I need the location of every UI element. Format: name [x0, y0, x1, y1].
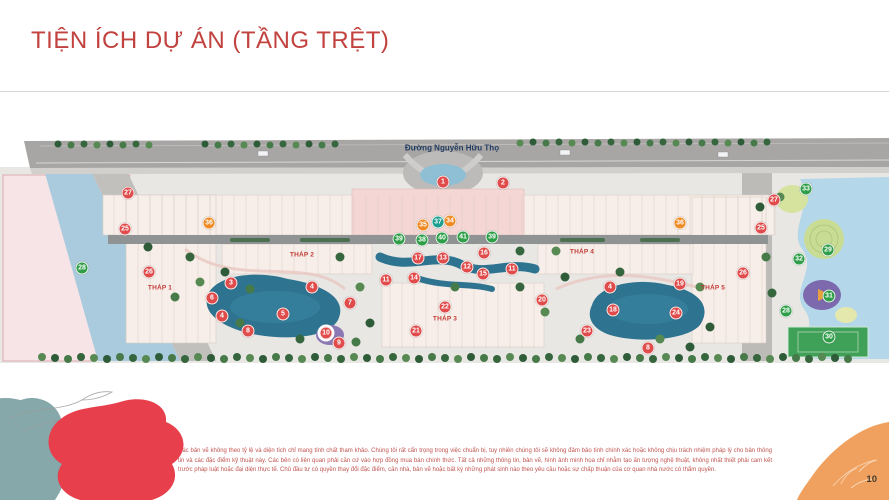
map-marker-39: 39	[393, 233, 406, 246]
map-marker-28: 28	[780, 305, 793, 318]
map-marker-35: 35	[417, 219, 430, 232]
map-marker-4: 4	[306, 281, 319, 294]
map-marker-25: 25	[119, 223, 132, 236]
map-marker-8: 8	[242, 325, 255, 338]
map-marker-10: 10	[320, 327, 333, 340]
marker-layer: 1234445678891011111213141516171819202122…	[0, 137, 889, 370]
page-number: 10	[866, 474, 877, 485]
tower-label: THÁP 4	[570, 249, 594, 256]
map-marker-38: 38	[416, 234, 429, 247]
tower-label: THÁP 1	[148, 285, 172, 292]
decor-bottom-right	[793, 414, 889, 500]
map-marker-26: 26	[737, 267, 750, 280]
map-marker-6: 6	[206, 292, 219, 305]
map-marker-29: 29	[822, 244, 835, 257]
map-marker-26: 26	[143, 266, 156, 279]
map-marker-39: 39	[486, 231, 499, 244]
map-marker-23: 23	[581, 325, 594, 338]
map-marker-8: 8	[642, 342, 655, 355]
title-divider	[0, 91, 889, 92]
map-marker-36: 36	[674, 217, 687, 230]
map-marker-11: 11	[506, 263, 519, 276]
map-marker-37: 37	[432, 216, 445, 229]
decor-bottom-left	[0, 360, 230, 500]
map-marker-1: 1	[437, 176, 450, 189]
site-plan-map: Đường Nguyễn Hữu Thọ 1234445678891011111…	[0, 137, 889, 370]
map-marker-31: 31	[823, 290, 836, 303]
orange-blob	[797, 422, 889, 500]
map-marker-34: 34	[444, 215, 457, 228]
map-marker-13: 13	[437, 252, 450, 265]
map-marker-32: 32	[793, 253, 806, 266]
tower-label: THÁP 3	[433, 316, 457, 323]
map-marker-21: 21	[410, 325, 423, 338]
map-marker-40: 40	[436, 232, 449, 245]
map-marker-30: 30	[823, 331, 836, 344]
map-marker-36: 36	[203, 217, 216, 230]
map-marker-24: 24	[670, 307, 683, 320]
map-marker-3: 3	[225, 277, 238, 290]
map-marker-4: 4	[216, 310, 229, 323]
map-marker-20: 20	[536, 294, 549, 307]
page-title: TIỆN ÍCH DỰ ÁN (TẦNG TRỆT)	[31, 27, 389, 55]
map-marker-16: 16	[478, 247, 491, 260]
map-marker-33: 33	[800, 183, 813, 196]
map-marker-4: 4	[604, 281, 617, 294]
map-marker-5: 5	[277, 308, 290, 321]
map-marker-28: 28	[76, 262, 89, 275]
map-marker-11: 11	[380, 274, 393, 287]
map-marker-2: 2	[497, 177, 510, 190]
map-marker-27: 27	[768, 194, 781, 207]
disclaimer-text: Các bản vẽ không theo tỷ lệ và diện tích…	[178, 447, 772, 476]
map-marker-22: 22	[439, 301, 452, 314]
map-marker-17: 17	[412, 252, 425, 265]
map-marker-9: 9	[333, 337, 346, 350]
map-marker-7: 7	[344, 297, 357, 310]
map-marker-27: 27	[122, 187, 135, 200]
map-marker-12: 12	[461, 261, 474, 274]
map-marker-14: 14	[408, 272, 421, 285]
tower-label: THÁP 5	[701, 285, 725, 292]
map-marker-41: 41	[457, 231, 470, 244]
red-blob	[49, 399, 184, 500]
map-marker-19: 19	[674, 278, 687, 291]
tower-label: THÁP 2	[290, 252, 314, 259]
map-marker-18: 18	[607, 304, 620, 317]
map-marker-25: 25	[755, 222, 768, 235]
map-marker-15: 15	[477, 268, 490, 281]
